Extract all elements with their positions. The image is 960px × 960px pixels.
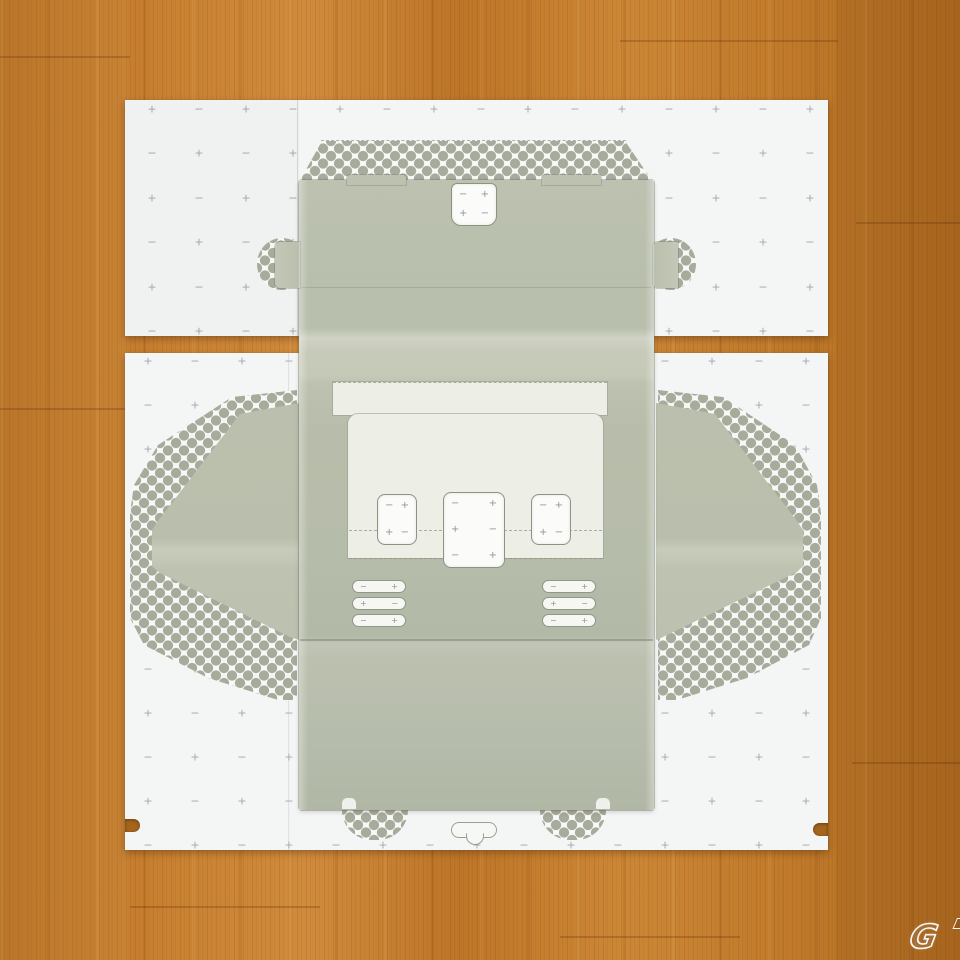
registration-mark: +: [143, 708, 152, 719]
registration-mark: −: [664, 192, 673, 203]
cutout-mark: +: [555, 501, 563, 511]
edge-notch-right: [813, 823, 828, 836]
registration-mark: +: [801, 796, 810, 807]
crease-line: [301, 287, 652, 288]
cutout-mark-row: −+: [459, 190, 489, 200]
registration-mark: −: [660, 796, 669, 807]
registration-mark: −: [801, 664, 810, 675]
vent-slot-mark: +: [391, 583, 398, 591]
registration-mark: +: [711, 192, 720, 203]
registration-mark: −: [519, 840, 528, 851]
top-edge-tab-right: [542, 175, 601, 185]
registration-mark: +: [523, 104, 532, 115]
vent-slot: +−: [352, 597, 406, 610]
side-tab-right: [653, 242, 678, 288]
edge-highlight-left: [299, 180, 308, 810]
top-tab-marks: −++−: [452, 184, 496, 225]
registration-mark: +: [805, 281, 814, 292]
watermark-letter: G: [907, 917, 941, 956]
registration-mark: −: [425, 840, 434, 851]
registration-mark: −: [754, 356, 763, 367]
cutout-mark: +: [539, 528, 547, 538]
cutout-mark: −: [451, 499, 459, 509]
registration-mark: −: [711, 148, 720, 159]
cutout-mark: −: [481, 209, 489, 219]
registration-mark: −: [331, 840, 340, 851]
registration-mark: −: [707, 752, 716, 763]
wood-plank-joint: [0, 56, 130, 58]
cutout-mark-row: +−: [385, 528, 409, 538]
wood-shade-band: [836, 0, 960, 960]
square-cutout-center: −++−−+: [443, 492, 505, 568]
registration-mark: −: [754, 796, 763, 807]
registration-mark: +: [801, 708, 810, 719]
registration-mark: +: [707, 708, 716, 719]
registration-mark: −: [805, 148, 814, 159]
registration-mark: −: [476, 104, 485, 115]
registration-mark: +: [758, 237, 767, 248]
bottom-fold-line: [300, 639, 653, 641]
vent-slot-mark: +: [391, 617, 398, 625]
registration-mark: −: [754, 708, 763, 719]
registration-mark: −: [190, 356, 199, 367]
watermark-tick: [952, 918, 960, 929]
cutout-mark: −: [539, 501, 547, 511]
registration-mark: +: [801, 356, 810, 367]
edge-notch-left: [125, 819, 140, 832]
vent-slot-mark: −: [360, 617, 367, 625]
registration-mark: −: [143, 840, 152, 851]
vent-slot-mark: +: [550, 600, 557, 608]
vent-slot-mark: −: [550, 583, 557, 591]
wood-plank-joint: [130, 906, 320, 908]
registration-mark: −: [190, 708, 199, 719]
top-edge-tab-left: [347, 175, 406, 185]
registration-mark: −: [382, 104, 391, 115]
registration-mark: −: [711, 326, 720, 337]
registration-mark: −: [237, 752, 246, 763]
vent-slot: −+: [352, 580, 406, 593]
registration-mark: −: [570, 104, 579, 115]
registration-mark: +: [335, 104, 344, 115]
registration-mark: −: [805, 237, 814, 248]
watermark-logo: G: [907, 920, 960, 958]
vent-slot-mark: −: [550, 617, 557, 625]
cutout-mark: −: [401, 528, 409, 538]
registration-mark: +: [143, 444, 152, 455]
cutout-mark: −: [459, 190, 467, 200]
registration-mark: +: [754, 840, 763, 851]
registration-mark: +: [378, 840, 387, 851]
cutout-mark: −: [385, 501, 393, 511]
cutout-mark-row: −+: [451, 551, 497, 561]
cutout-mark: −: [451, 551, 459, 561]
registration-mark: +: [707, 356, 716, 367]
registration-mark: −: [801, 752, 810, 763]
registration-mark: +: [143, 796, 152, 807]
cutout-mark: +: [451, 525, 459, 535]
registration-mark: −: [664, 104, 673, 115]
wood-plank-joint: [620, 40, 838, 42]
registration-mark: +: [758, 326, 767, 337]
registration-mark: −: [801, 840, 810, 851]
vent-slots-right: −++−−+: [542, 580, 596, 627]
registration-mark: +: [664, 148, 673, 159]
cutout-mark-row: −+: [539, 501, 563, 511]
vent-slot: +−: [542, 597, 596, 610]
vent-slot-mark: −: [581, 600, 588, 608]
cutout-mark: +: [401, 501, 409, 511]
registration-mark: −: [143, 752, 152, 763]
registration-mark: −: [660, 708, 669, 719]
registration-mark: −: [143, 664, 152, 675]
registration-mark: −: [660, 356, 669, 367]
cutout-mark-row: +−: [451, 525, 497, 535]
registration-mark: +: [190, 840, 199, 851]
top-sheet-left-panel-shade: [125, 100, 297, 336]
cutout-mark: +: [489, 551, 497, 561]
wood-plank-joint: [560, 936, 740, 938]
registration-mark: −: [758, 281, 767, 292]
vent-slot-mark: +: [581, 617, 588, 625]
registration-mark: +: [237, 356, 246, 367]
registration-mark: +: [660, 752, 669, 763]
registration-mark: +: [805, 104, 814, 115]
wood-plank-joint: [0, 408, 126, 410]
registration-mark: +: [237, 708, 246, 719]
cardboard-main-panel: −++− −++− −++−−+ −++− −++−−+ −++−−+: [299, 180, 654, 810]
photo-scene: +−+−+−+−+−+−+−+−+−+−+−+−+−+−+−+−+−+−+−+−…: [0, 0, 960, 960]
registration-mark: +: [754, 400, 763, 411]
registration-mark: −: [758, 104, 767, 115]
registration-mark: +: [190, 752, 199, 763]
cutout-mark-row: +−: [459, 209, 489, 219]
registration-mark: +: [711, 281, 720, 292]
vent-slot: −+: [542, 580, 596, 593]
edge-highlight-right: [645, 180, 654, 810]
registration-mark: +: [754, 752, 763, 763]
cutout-mark: +: [459, 209, 467, 219]
registration-mark: +: [237, 796, 246, 807]
registration-mark: +: [758, 148, 767, 159]
inset-panel-top: [333, 382, 607, 415]
registration-mark: −: [143, 400, 152, 411]
registration-mark: +: [190, 400, 199, 411]
cutout-mark: −: [555, 528, 563, 538]
side-tab-left: [275, 242, 300, 288]
wood-plank-joint: [856, 222, 960, 224]
registration-mark: −: [758, 192, 767, 203]
registration-mark: +: [664, 326, 673, 337]
square-cutout-right: −++−: [531, 494, 571, 545]
square-cutout-center-marks: −++−−+: [444, 493, 504, 567]
flap-corner-cut-right: [596, 798, 610, 809]
wood-shade-band: [0, 0, 128, 960]
vent-slot: −+: [542, 614, 596, 627]
vent-slot-mark: −: [360, 583, 367, 591]
registration-mark: +: [660, 840, 669, 851]
vent-slot: −+: [352, 614, 406, 627]
registration-mark: −: [190, 796, 199, 807]
registration-mark: −: [711, 237, 720, 248]
square-cutout-right-marks: −++−: [532, 495, 570, 544]
registration-mark: +: [707, 796, 716, 807]
registration-mark: −: [707, 840, 716, 851]
cutout-mark: +: [385, 528, 393, 538]
vent-slots-left: −++−−+: [352, 580, 406, 627]
registration-mark: −: [805, 326, 814, 337]
registration-mark: +: [617, 104, 626, 115]
registration-mark: +: [566, 840, 575, 851]
cutout-mark: +: [481, 190, 489, 200]
registration-mark: +: [143, 356, 152, 367]
cutout-mark-row: +−: [539, 528, 563, 538]
cutout-mark-row: −+: [385, 501, 409, 511]
flap-corner-cut-left: [342, 798, 356, 809]
registration-mark: +: [801, 444, 810, 455]
wood-plank-joint: [852, 762, 960, 764]
top-tab-cutout: −++−: [451, 183, 497, 226]
registration-mark: −: [237, 840, 246, 851]
cutout-mark-row: −+: [451, 499, 497, 509]
cutout-mark: +: [489, 499, 497, 509]
cutout-mark: −: [489, 525, 497, 535]
vent-slot-mark: +: [581, 583, 588, 591]
registration-mark: −: [613, 840, 622, 851]
registration-mark: +: [429, 104, 438, 115]
square-cutout-left: −++−: [377, 494, 417, 545]
square-cutout-left-marks: −++−: [378, 495, 416, 544]
cut-dash-line-top: [321, 140, 626, 141]
pull-tab-cutout: [451, 822, 497, 838]
registration-mark: −: [801, 400, 810, 411]
vent-slot-mark: +: [360, 600, 367, 608]
registration-mark: +: [711, 104, 720, 115]
registration-mark: +: [805, 192, 814, 203]
vent-slot-mark: −: [391, 600, 398, 608]
